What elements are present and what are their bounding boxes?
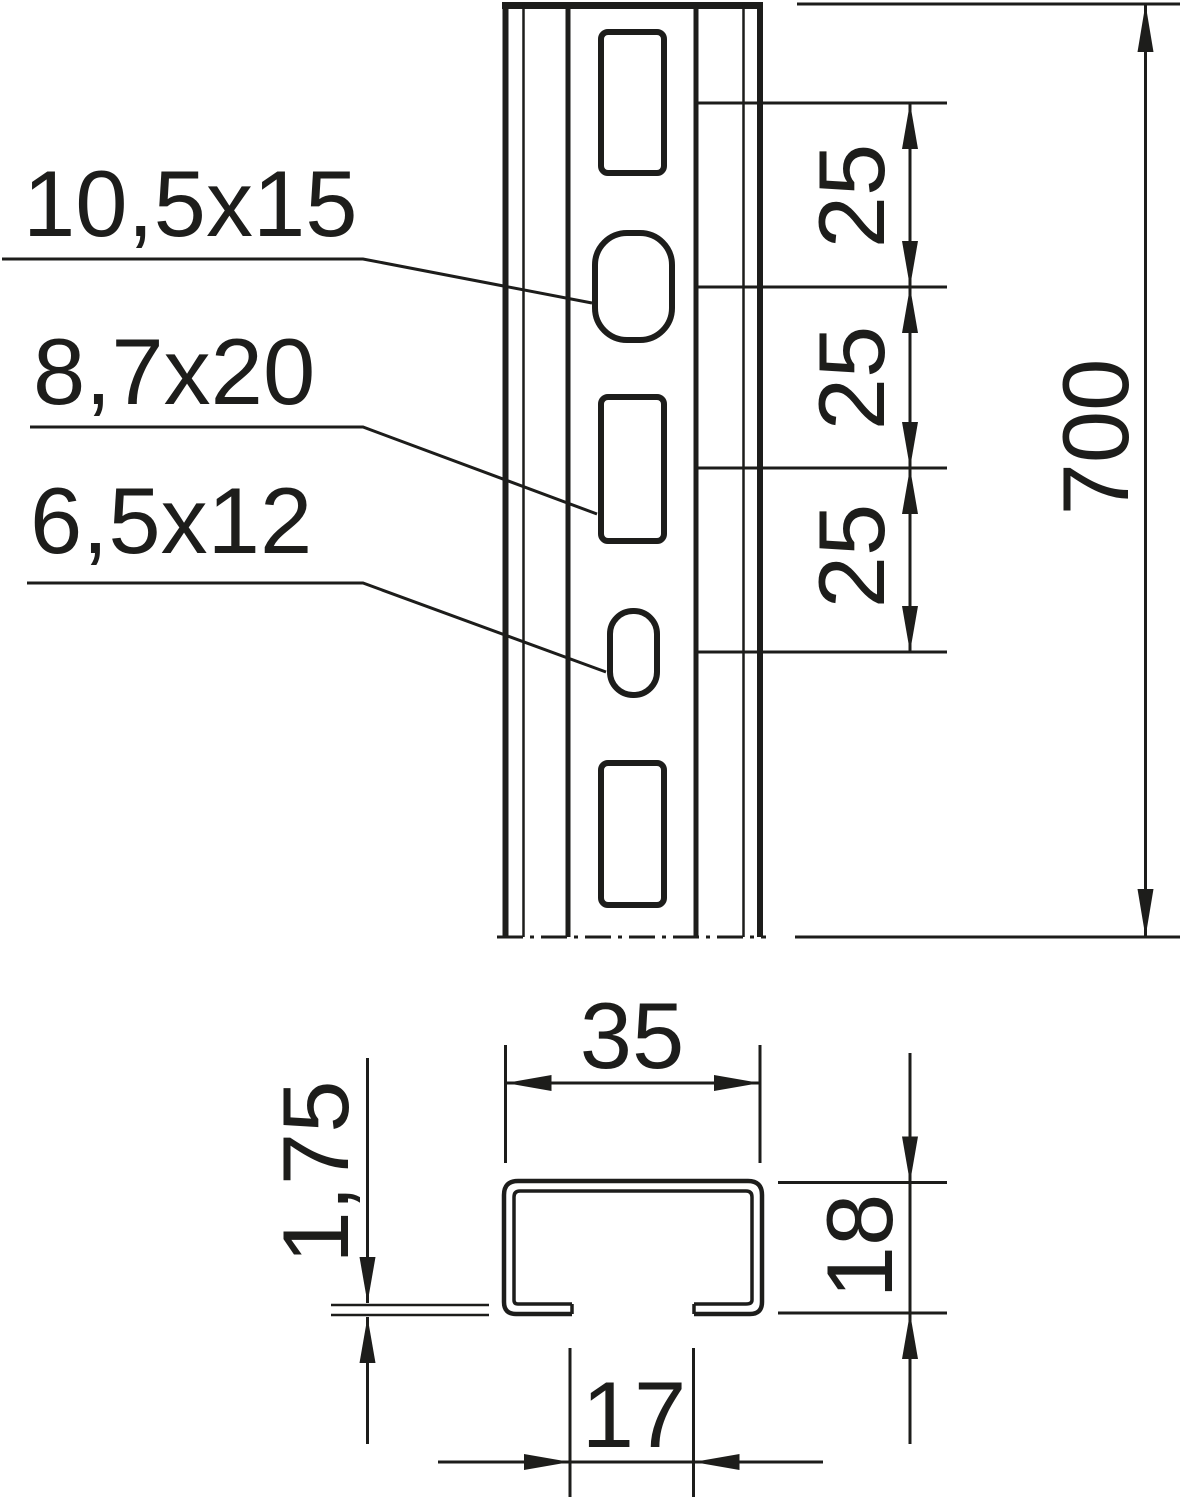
arrowhead-width-left (506, 1075, 552, 1091)
arrowhead-thickness-up (360, 1317, 376, 1363)
arrowhead-up-3 (902, 468, 918, 514)
slot-oval-small (610, 611, 657, 695)
label-oval-large: 10,5x15 (23, 151, 358, 256)
dim-hole-pitch: 25 25 25 (697, 103, 947, 652)
technical-drawing-page: 10,5x15 8,7x20 6,5x12 25 25 25 700 (0, 0, 1183, 1500)
dim-text-pitch-2: 25 (799, 326, 904, 431)
slot-oval-large (595, 233, 672, 340)
dim-text-width: 35 (580, 983, 685, 1088)
dim-text-opening: 17 (582, 1362, 687, 1467)
leader-oval-small (27, 583, 606, 672)
arrowhead-length-bottom (1138, 889, 1154, 937)
arrowhead-length-top (1138, 4, 1154, 52)
arrowhead-up-2 (902, 287, 918, 333)
dim-slot-opening: 17 (438, 1348, 823, 1497)
callout-oval-small: 6,5x12 (27, 468, 606, 672)
arrowhead-width-right (714, 1075, 760, 1091)
arrowhead-down-2 (902, 422, 918, 468)
arrowhead-opening-left (694, 1454, 740, 1470)
arrowhead-height-down (902, 1137, 918, 1183)
arrowhead-down-3 (902, 606, 918, 652)
dim-text-length: 700 (1043, 359, 1148, 516)
arrowhead-down-1 (902, 241, 918, 287)
cross-section-view (504, 1181, 762, 1314)
arrowhead-opening-right (524, 1454, 570, 1470)
label-oval-small: 6,5x12 (30, 468, 312, 573)
slot-rect-middle (601, 397, 664, 541)
rail-drawing-svg: 10,5x15 8,7x20 6,5x12 25 25 25 700 (0, 0, 1183, 1500)
slot-rect-top (601, 32, 664, 173)
dim-profile-width: 35 (506, 983, 761, 1163)
dim-text-pitch-3: 25 (799, 504, 904, 609)
arrowhead-height-up (902, 1313, 918, 1359)
slot-rect-bottom (601, 763, 664, 905)
label-rect-slot: 8,7x20 (33, 319, 315, 424)
dim-text-pitch-1: 25 (799, 144, 904, 249)
arrowhead-up-1 (902, 103, 918, 149)
profile-inner-contour (514, 1191, 752, 1304)
dim-text-thickness: 1,75 (263, 1081, 368, 1264)
dim-material-thickness: 1,75 (263, 1058, 489, 1444)
dim-text-height: 18 (807, 1194, 912, 1299)
profile-outer-contour (504, 1181, 762, 1314)
dim-profile-height: 18 (778, 1053, 947, 1444)
